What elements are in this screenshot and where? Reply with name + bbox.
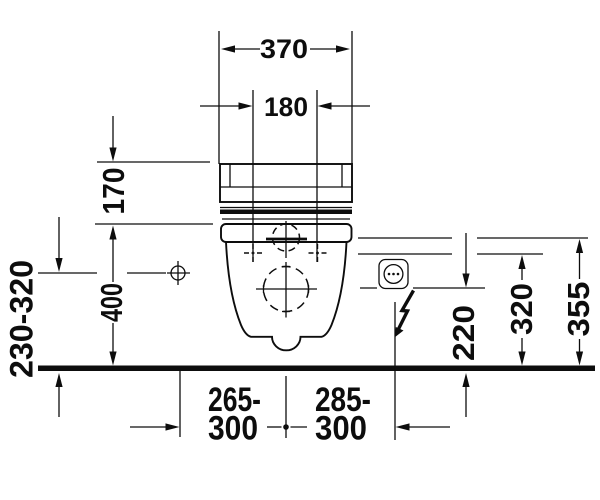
dim-label-265-300: 300 bbox=[208, 410, 258, 448]
seat-hinge-band bbox=[220, 210, 352, 215]
lightning-bolt-icon bbox=[395, 291, 414, 338]
arrowhead bbox=[109, 226, 116, 240]
dim-label-370: 370 bbox=[260, 34, 308, 64]
arrowhead bbox=[55, 373, 62, 387]
arrowhead bbox=[462, 373, 469, 387]
socket-dot bbox=[397, 273, 400, 276]
dim-label-230-320: 230-320 bbox=[4, 260, 40, 378]
dim-supply-height: 230-320 bbox=[4, 217, 63, 417]
fixing-hole-mark-left bbox=[244, 244, 262, 262]
right-reference-lines bbox=[358, 238, 588, 288]
dim-cistern-height: 170 bbox=[95, 116, 213, 240]
toilet-front-view bbox=[220, 164, 352, 350]
floor-line bbox=[38, 366, 595, 372]
dim-label-180: 180 bbox=[264, 92, 308, 122]
dim-label-170: 170 bbox=[96, 168, 131, 215]
dim-label-285-300: 300 bbox=[315, 410, 367, 448]
arrowhead bbox=[166, 423, 180, 430]
arrowhead bbox=[462, 274, 469, 288]
arrowhead bbox=[55, 258, 62, 272]
arrowhead bbox=[109, 148, 116, 162]
arrowhead bbox=[221, 45, 235, 52]
dim-label-355: 355 bbox=[561, 282, 596, 337]
dim-socket-top-height: 355 bbox=[561, 239, 596, 366]
bolt-arrowhead bbox=[395, 327, 404, 338]
dim-label-220: 220 bbox=[446, 305, 481, 361]
power-socket-icon bbox=[379, 260, 408, 289]
dim-label-400: 400 bbox=[94, 283, 129, 322]
toilet-installation-drawing: 370 180 170 400 230-320 bbox=[0, 0, 600, 500]
cistern-cover bbox=[220, 164, 352, 202]
center-dot bbox=[283, 424, 289, 430]
drain-connection-mark bbox=[256, 262, 317, 318]
arrowhead bbox=[336, 45, 350, 52]
dim-outlet-height: 220 bbox=[446, 233, 481, 417]
socket-dot bbox=[392, 273, 395, 276]
dim-fixing-holes: 180 bbox=[200, 90, 370, 262]
arrowhead bbox=[318, 102, 332, 109]
fixing-hole-mark-right bbox=[309, 244, 327, 262]
dim-rim-height: 400 bbox=[94, 239, 129, 366]
arrowhead bbox=[239, 102, 253, 109]
socket-dot bbox=[388, 273, 391, 276]
arrowhead bbox=[518, 352, 525, 366]
dim-label-320: 320 bbox=[504, 283, 539, 335]
bolt-zigzag bbox=[398, 291, 414, 332]
arrowhead bbox=[109, 352, 116, 366]
arrowhead bbox=[518, 255, 525, 269]
arrowhead bbox=[576, 239, 583, 253]
arrowhead bbox=[396, 423, 410, 430]
dim-socket-mid-height: 320 bbox=[504, 255, 539, 366]
arrowhead bbox=[576, 352, 583, 366]
